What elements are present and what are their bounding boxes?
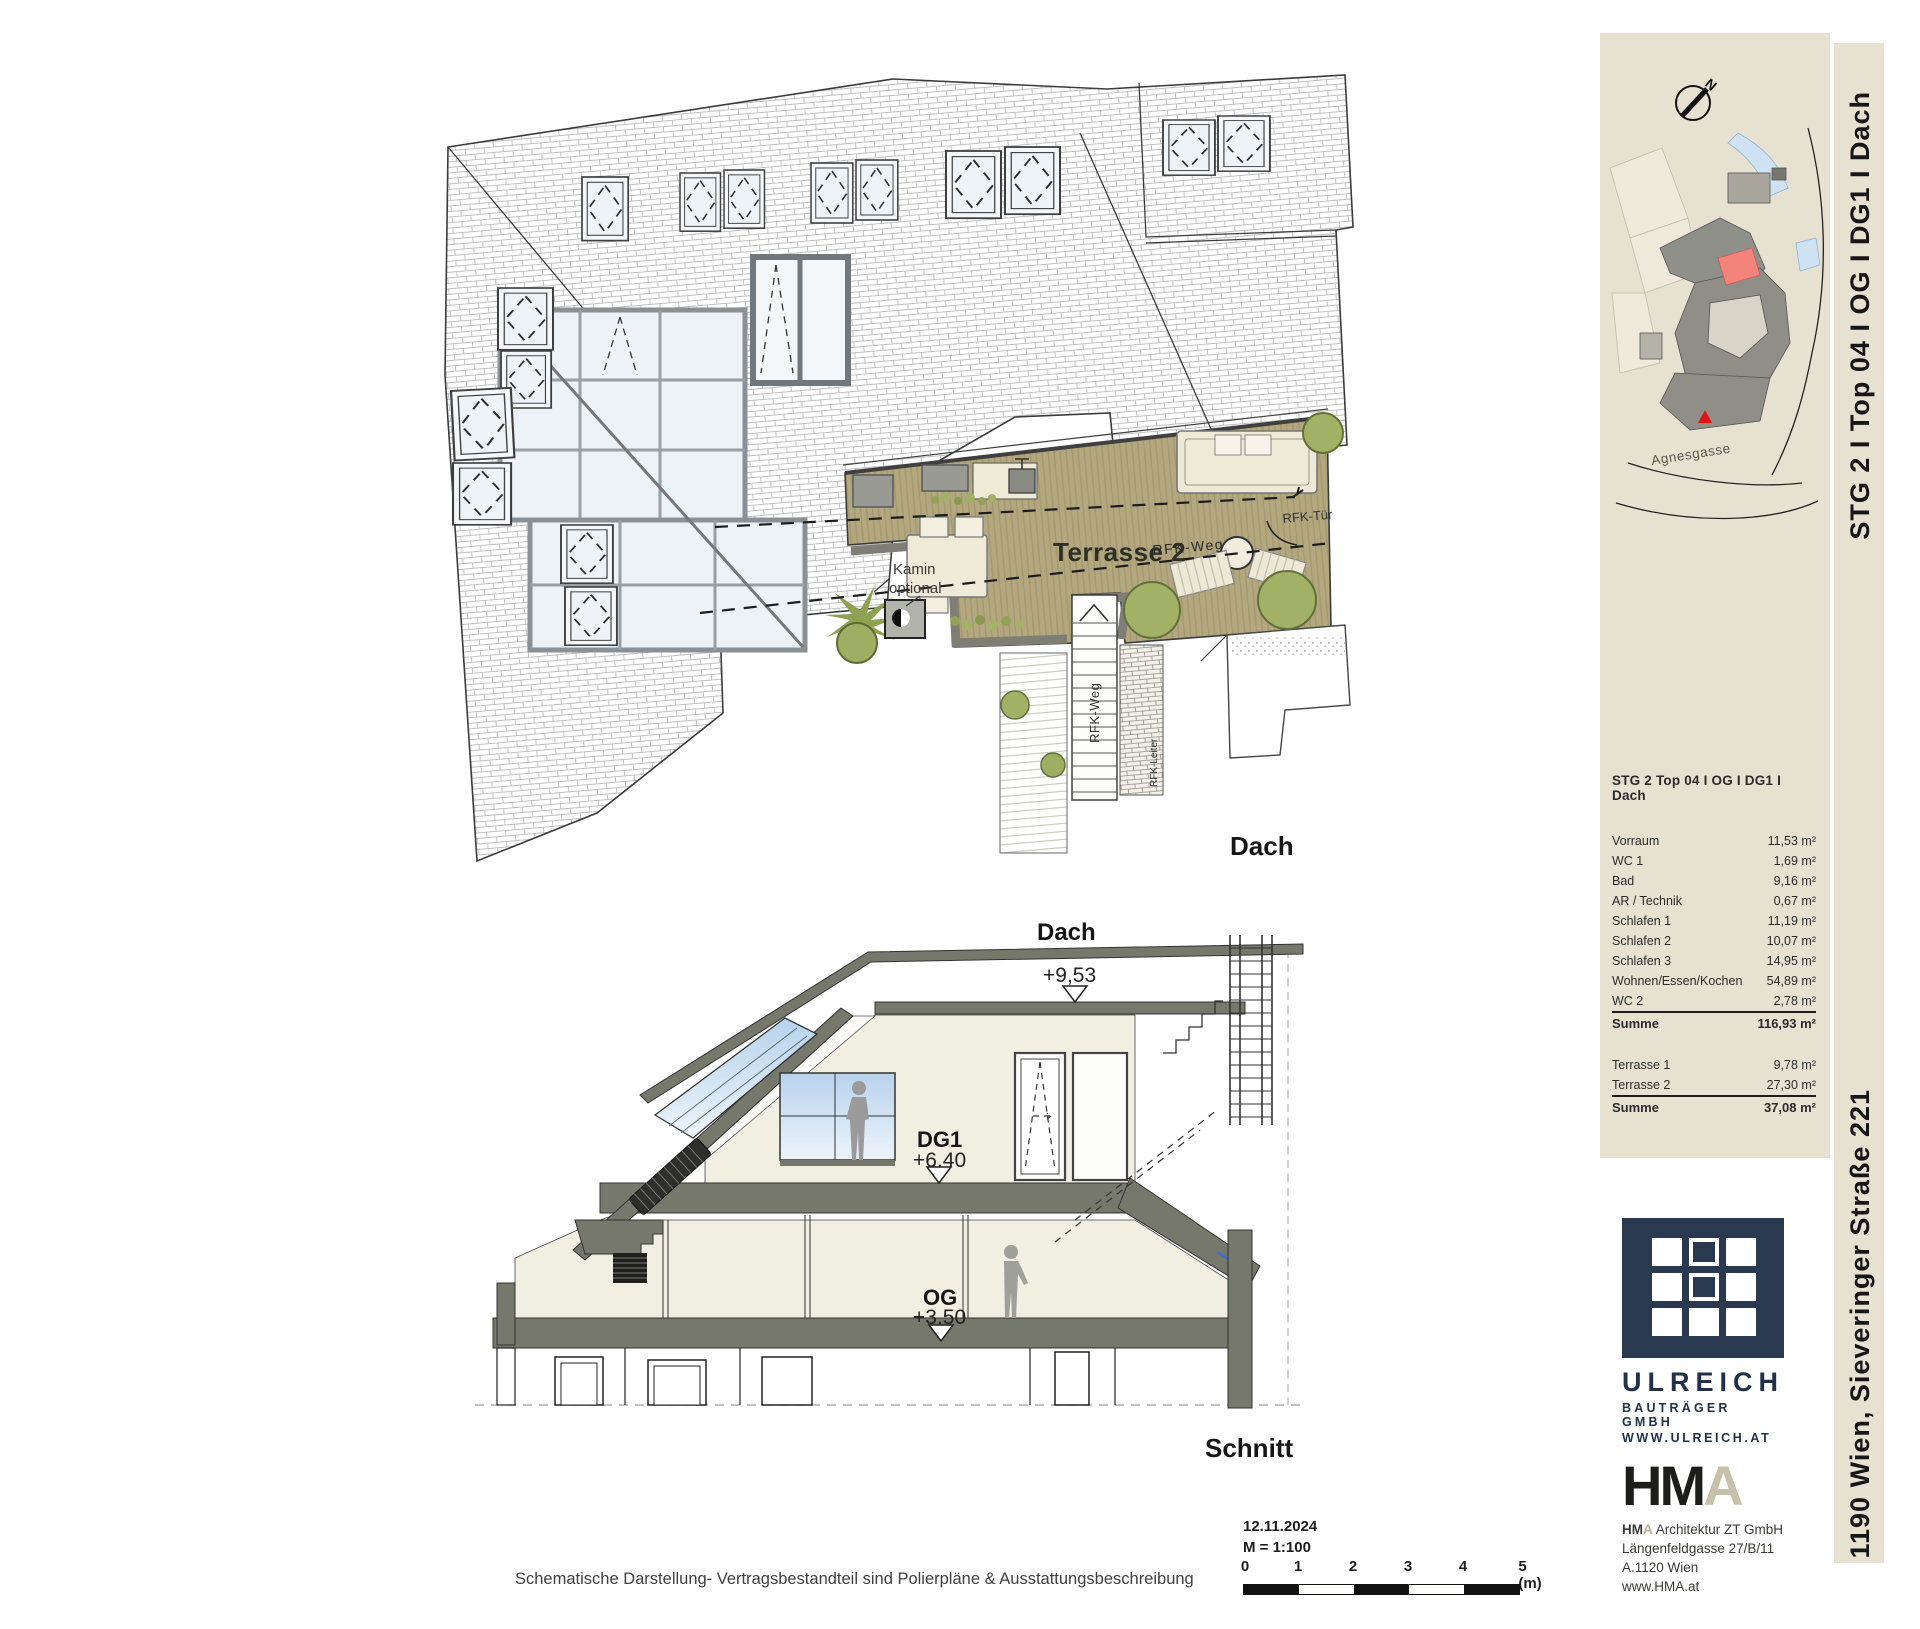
- hma-address-1: Längenfeldgasse 27/B/11: [1622, 1539, 1862, 1558]
- date-scale-block: 12.11.2024 M = 1:100: [1243, 1516, 1317, 1558]
- outdoor-sofa: [1177, 431, 1317, 493]
- right-pier: [1228, 1230, 1252, 1408]
- ulreich-logo-icon: [1622, 1218, 1784, 1358]
- outdoor-kitchen-block: [922, 465, 968, 491]
- table-row: Terrasse 227,30 m²: [1612, 1075, 1816, 1095]
- plan-date: 12.11.2024: [1243, 1516, 1317, 1537]
- table-row: Bad9,16 m²: [1612, 871, 1816, 891]
- og-floor-slab: [493, 1318, 1233, 1348]
- eave-hatch-block: [613, 1253, 647, 1283]
- table-sum-row: Summe37,08 m²: [1612, 1095, 1816, 1119]
- plan-scale: M = 1:100: [1243, 1537, 1317, 1558]
- kamin-label-1: Kamin: [893, 561, 936, 578]
- tree-3: [1303, 413, 1343, 453]
- adjacent-building-mass: [1201, 625, 1350, 758]
- table-row: Terrasse 19,78 m²: [1612, 1055, 1816, 1075]
- street-label: Agnesgasse: [1650, 441, 1732, 468]
- compass-icon: N: [1676, 75, 1720, 120]
- level-dach-elev: +9,53: [1043, 964, 1096, 987]
- dg1-floor-slab: [600, 1183, 1135, 1213]
- plan-sheet: RFK-Weg RFK-Leiter: [0, 0, 1920, 1629]
- hma-website: www.HMA.at: [1622, 1577, 1862, 1596]
- level-marker-icon: [1063, 986, 1087, 1002]
- hma-logo: HMA HMA Architektur ZT GmbH Längenfeldga…: [1622, 1458, 1862, 1596]
- hma-address-2: A.1120 Wien: [1622, 1558, 1862, 1577]
- kamin-chimney: [885, 600, 925, 638]
- section-drawing: Dach +9,53 DG1 +6,40 OG +3,50 Schnitt: [455, 920, 1325, 1480]
- tree-1: [1124, 582, 1180, 638]
- table-row: Schlafen 111,19 m²: [1612, 911, 1816, 931]
- lower-level: [497, 1348, 1115, 1405]
- ulreich-name: ULREICH: [1622, 1367, 1786, 1398]
- table-row: WC 22,78 m²: [1612, 991, 1816, 1011]
- hma-logo-icon: HMA: [1622, 1458, 1862, 1514]
- table-row: Wohnen/Essen/Kochen54,89 m²: [1612, 971, 1816, 991]
- section-title: Schnitt: [1205, 1433, 1293, 1463]
- scale-tick: 0: [1241, 1558, 1249, 1575]
- info-panel: N: [1600, 33, 1830, 1158]
- table-row: Vorraum11,53 m²: [1612, 831, 1816, 851]
- scale-bar: 0 1 2 3 4 5 (m): [1243, 1558, 1543, 1604]
- lower-roof-glazing: [1000, 653, 1067, 853]
- sink: [1009, 469, 1035, 493]
- scale-bar-segments: [1243, 1584, 1520, 1595]
- unit-table-title: STG 2 Top 04 I OG I DG1 I Dach: [1612, 773, 1816, 803]
- scale-tick: 1: [1294, 1558, 1302, 1575]
- hma-company: HMA Architektur ZT GmbH: [1622, 1520, 1862, 1539]
- sheet-title-vertical: STG 2 I Top 04 I OG I DG1 I Dach: [1845, 91, 1876, 540]
- left-wall-upper: [497, 1283, 515, 1345]
- table-sum-row: Summe116,93 m²: [1612, 1011, 1816, 1035]
- level-dach-name: Dach: [1037, 920, 1096, 946]
- ulreich-subtitle: BAUTRÄGER GMBH: [1622, 1401, 1786, 1429]
- roof-window-pair: [753, 257, 848, 383]
- kamin-label-2: optional: [889, 580, 942, 597]
- site-map: N: [1600, 33, 1828, 533]
- clerestory-window: [780, 1073, 895, 1166]
- rfk-leiter-label: RFK-Leiter: [1149, 738, 1160, 787]
- scale-tick: 3: [1404, 1558, 1412, 1575]
- side-table: [853, 475, 893, 507]
- table-row: AR / Technik0,67 m²: [1612, 891, 1816, 911]
- scale-tick: 2: [1349, 1558, 1357, 1575]
- table-row: Schlafen 210,07 m²: [1612, 931, 1816, 951]
- ulreich-website: WWW.ULREICH.AT: [1622, 1431, 1786, 1445]
- roof-plan-title: Dach: [1230, 831, 1294, 861]
- project-address-vertical: 1190 Wien, Sieveringer Straße 221: [1845, 1089, 1876, 1559]
- tree-2: [1258, 571, 1316, 629]
- scale-tick: 5 (m): [1518, 1558, 1541, 1592]
- unit-area-table: STG 2 Top 04 I OG I DG1 I Dach Vorraum11…: [1612, 773, 1816, 1119]
- ulreich-logo: ULREICH BAUTRÄGER GMBH WWW.ULREICH.AT: [1622, 1218, 1786, 1445]
- table-row: Schlafen 314,95 m²: [1612, 951, 1816, 971]
- scale-tick: 4: [1459, 1558, 1467, 1575]
- roof-plan-drawing: RFK-Weg RFK-Leiter: [415, 65, 1355, 880]
- dg1-ceiling-slab: [875, 1002, 1245, 1014]
- terrace-stair: RFK-Weg: [1072, 595, 1117, 800]
- disclaimer-text: Schematische Darstellung- Vertragsbestan…: [515, 1570, 1194, 1589]
- table-row: WC 11,69 m²: [1612, 851, 1816, 871]
- stair-path-label: RFK-Weg: [1087, 683, 1102, 743]
